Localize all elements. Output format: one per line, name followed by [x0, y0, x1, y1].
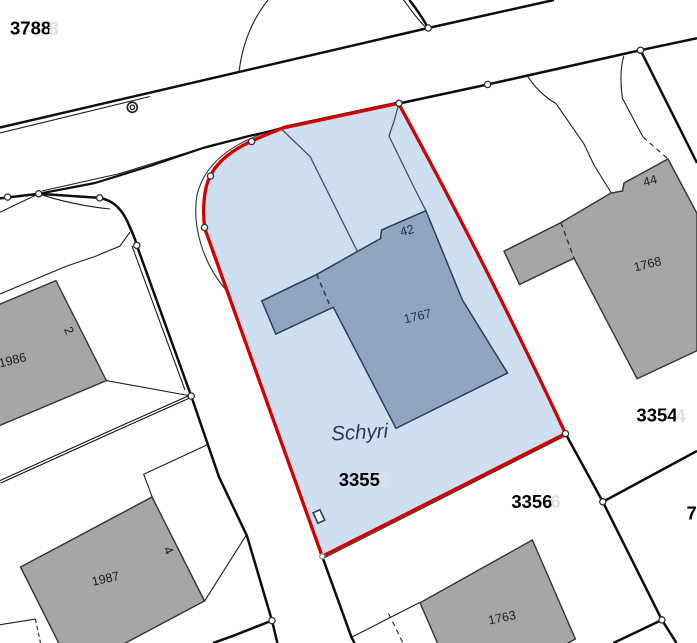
svg-text:5: 5 [378, 470, 388, 490]
svg-text:3354: 3354 [636, 405, 678, 426]
svg-text:78: 78 [687, 502, 697, 523]
svg-text:6: 6 [550, 492, 560, 512]
svg-text:4: 4 [675, 406, 685, 426]
svg-text:3788: 3788 [10, 18, 51, 39]
svg-text:Schyri: Schyri [331, 419, 391, 445]
svg-text:3356: 3356 [511, 491, 552, 512]
svg-text:8: 8 [48, 19, 58, 39]
svg-text:3355: 3355 [339, 469, 380, 490]
